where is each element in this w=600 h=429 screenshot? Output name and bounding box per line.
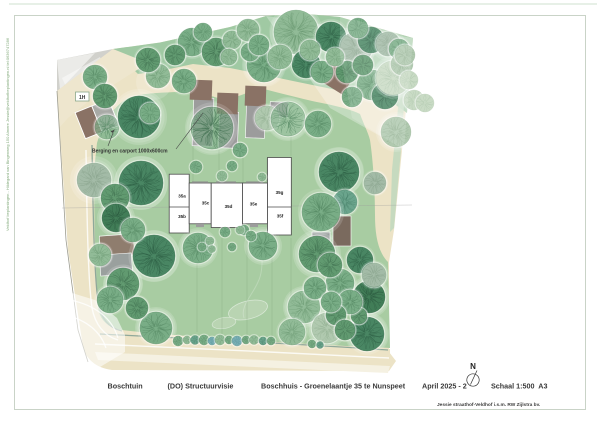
svg-text:35c: 35c [202,201,210,206]
svg-text:35g: 35g [276,190,284,195]
svg-text:Berging en carport 1000x600cm: Berging en carport 1000x600cm [92,149,168,155]
svg-text:Boschhuis - Groenelaantje 35 t: Boschhuis - Groenelaantje 35 te Nunspeet [261,382,406,391]
svg-text:Schaal 1:500 A3: Schaal 1:500 A3 [491,382,547,391]
svg-text:35d: 35d [225,204,233,209]
svg-text:1H: 1H [79,95,86,101]
svg-text:35a: 35a [178,194,186,199]
svg-text:Veldhof beplantingen - Hildega: Veldhof beplantingen - Hildegard van Bin… [5,37,10,231]
svg-text:(DO) Structuurvisie: (DO) Structuurvisie [168,382,234,391]
svg-text:35f: 35f [277,214,284,219]
svg-text:Boschtuin: Boschtuin [108,382,143,391]
svg-text:35b: 35b [178,214,186,219]
svg-text:April 2025 - 2: April 2025 - 2 [422,382,467,391]
svg-text:35e: 35e [250,202,258,207]
svg-text:N: N [470,362,476,371]
svg-text:Jessie straathof-Veldhof i.s.m: Jessie straathof-Veldhof i.s.m. RW Zijls… [437,402,540,408]
